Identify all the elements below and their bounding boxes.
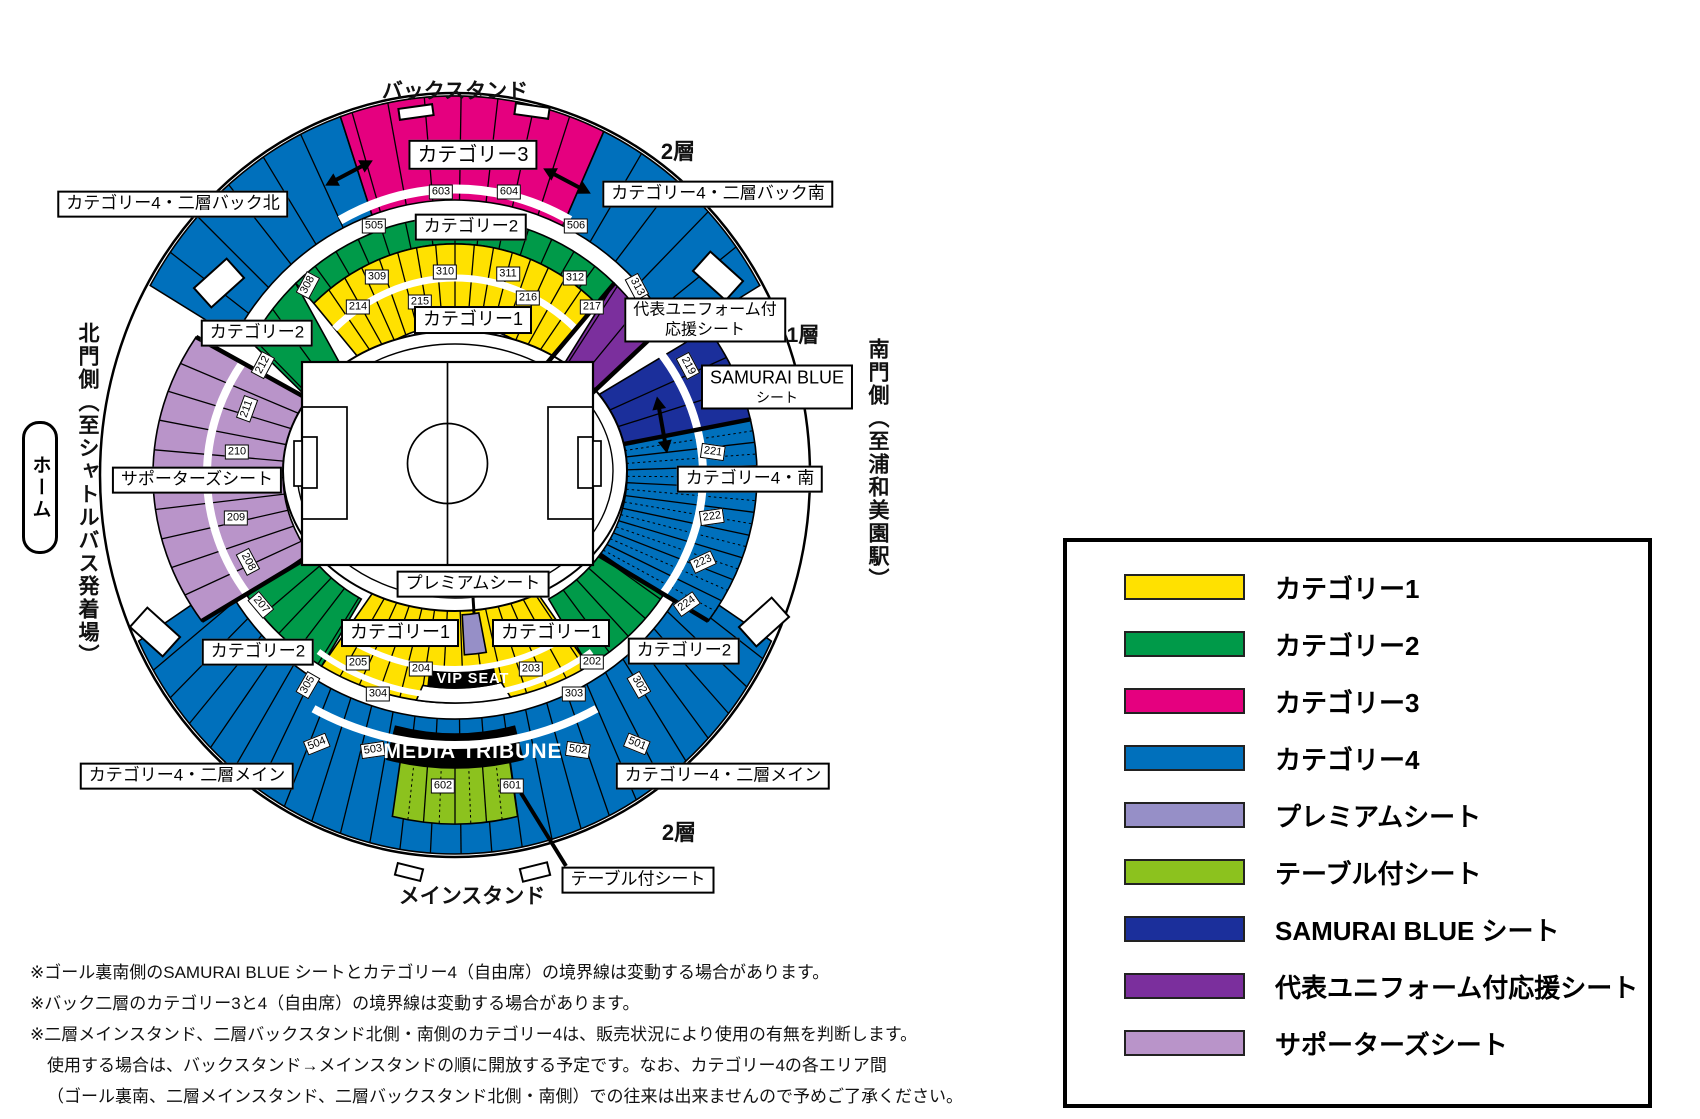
legend-label-supporters: サポーターズシート [1275, 1025, 1508, 1062]
label-cat4-back-north: カテゴリー4・二層バック北 [57, 191, 288, 218]
legend-label-premium: プレミアムシート [1275, 797, 1481, 834]
section-number-chip: 204 [409, 662, 433, 677]
label-table-seat: テーブル付シート [562, 867, 715, 894]
vip-seat-band: VIP SEAT [437, 671, 510, 687]
legend-label-samurai: SAMURAI BLUE シート [1275, 911, 1560, 948]
section-number-chip: 506 [564, 219, 588, 234]
section-number-chip: 203 [519, 662, 543, 677]
legend-item-category3: カテゴリー3 [1067, 688, 1648, 714]
legend-label-category2: カテゴリー2 [1275, 626, 1419, 663]
legend-swatch-category3 [1124, 688, 1245, 714]
goal-left [294, 441, 302, 486]
label-samurai-blue-seat: SAMURAI BLUE シート [701, 364, 853, 409]
legend-item-category2: カテゴリー2 [1067, 631, 1648, 657]
label-samurai-line2: シート [710, 389, 844, 406]
legend-item-supporters: サポーターズシート [1067, 1030, 1648, 1056]
section-number-chip: 205 [346, 656, 370, 671]
gate-structure [520, 862, 550, 881]
label-category3: カテゴリー3 [408, 140, 537, 170]
tier1-label: 1層 [787, 319, 820, 349]
main-stand-title: メインスタンド [399, 880, 546, 910]
label-cat4-main-left: カテゴリー4・二層メイン [80, 763, 294, 790]
legend-label-category1: カテゴリー1 [1275, 569, 1419, 606]
legend-swatch-samurai [1124, 916, 1245, 942]
section-number-chip: 216 [516, 291, 540, 306]
section-number-chip: 217 [580, 300, 604, 315]
label-uniform-seat-line2: 応援シート [633, 320, 777, 340]
label-category1-bottom-right: カテゴリー1 [492, 619, 610, 647]
home-badge-text: ホーム [27, 455, 54, 521]
tier2-top-label: 2層 [661, 134, 695, 166]
label-samurai-line1: SAMURAI BLUE [710, 367, 844, 389]
footnote-line: ※バック二層のカテゴリー3と4（自由席）の境界線は変動する場合があります。 [30, 988, 963, 1019]
legend-label-uniform: 代表ユニフォーム付応援シート [1275, 968, 1638, 1005]
section-number-chip: 311 [496, 267, 520, 282]
legend: カテゴリー1 カテゴリー2 カテゴリー3 カテゴリー4 プレミアムシート テーブ… [1063, 538, 1652, 1108]
label-supporters-seat: サポーターズシート [112, 467, 282, 494]
gate-structure [395, 863, 423, 881]
section-number-chip: 210 [225, 445, 249, 460]
footnote-line: （ゴール裏南、二層メインスタンド、二層バックスタンド北側・南側）での往来は出来ま… [30, 1081, 963, 1112]
section-number-chip: 604 [497, 185, 521, 200]
section-number-chip: 214 [346, 300, 370, 315]
legend-item-category4: カテゴリー4 [1067, 745, 1648, 771]
section-number-chip: 209 [224, 511, 248, 526]
label-category1-top: カテゴリー1 [414, 306, 532, 334]
legend-item-table: テーブル付シート [1067, 859, 1648, 885]
media-tribune-band: MEDIA TRIBUNE [383, 740, 562, 764]
section-number-chip: 303 [562, 687, 586, 702]
section-number-chip: 312 [563, 271, 587, 286]
section-number-chip: 601 [500, 779, 524, 794]
section-number-chip: 221 [700, 443, 726, 461]
goal-right [593, 441, 601, 486]
section-number-chip: 602 [431, 779, 455, 794]
legend-item-samurai: SAMURAI BLUE シート [1067, 916, 1648, 942]
section-number-chip: 304 [366, 687, 390, 702]
label-category2-bottom-left: カテゴリー2 [202, 639, 314, 666]
tier2-bottom-label: 2層 [662, 815, 696, 847]
legend-swatch-premium [1124, 802, 1245, 828]
legend-item-uniform: 代表ユニフォーム付応援シート [1067, 973, 1648, 999]
footnote-line: ※ゴール裏南側のSAMURAI BLUE シートとカテゴリー4（自由席）の境界線… [30, 957, 963, 988]
label-cat4-main-right: カテゴリー4・二層メイン [616, 763, 830, 790]
section-number-chip: 202 [580, 655, 604, 670]
section-number-chip: 309 [365, 270, 389, 285]
label-cat4-south: カテゴリー4・南 [677, 466, 823, 493]
legend-label-table: テーブル付シート [1275, 854, 1481, 891]
legend-label-category3: カテゴリー3 [1275, 683, 1419, 720]
label-category1-bottom-left: カテゴリー1 [341, 619, 459, 647]
legend-swatch-table [1124, 859, 1245, 885]
label-uniform-seat: 代表ユニフォーム付 応援シート [624, 297, 786, 342]
legend-item-category1: カテゴリー1 [1067, 574, 1648, 600]
north-gate-label: 北門側（至シャトルバス発着場） [72, 322, 102, 667]
label-uniform-seat-line1: 代表ユニフォーム付 [633, 300, 777, 320]
legend-swatch-supporters [1124, 1030, 1245, 1056]
section-number-chip: 502 [565, 741, 591, 759]
legend-swatch-category4 [1124, 745, 1245, 771]
home-badge: ホーム [22, 421, 58, 554]
legend-item-premium: プレミアムシート [1067, 802, 1648, 828]
label-cat4-back-south: カテゴリー4・二層バック南 [602, 181, 833, 208]
legend-swatch-category2 [1124, 631, 1245, 657]
label-category2-left: カテゴリー2 [201, 320, 313, 347]
legend-label-category4: カテゴリー4 [1275, 740, 1419, 777]
section-number-chip: 603 [429, 185, 453, 200]
footnote-line: ※二層メインスタンド、二層バックスタンド北側・南側のカテゴリー4は、販売状況によ… [30, 1019, 963, 1050]
seating-chart-page: バックスタンド メインスタンド 2層 2層 1層 北門側（至シャトルバス発着場）… [0, 0, 1700, 1119]
premium-pointer-line [473, 597, 474, 613]
section-number-chip: 505 [362, 219, 386, 234]
footnotes: ※ゴール裏南側のSAMURAI BLUE シートとカテゴリー4（自由席）の境界線… [30, 957, 963, 1112]
back-stand-title: バックスタンド [382, 75, 528, 105]
legend-swatch-uniform [1124, 973, 1245, 999]
label-category2-top: カテゴリー2 [415, 214, 527, 241]
label-category2-bottom-right: カテゴリー2 [628, 638, 740, 665]
section-number-chip: 310 [433, 265, 457, 280]
south-gate-label: 南門側（至浦和美園駅） [862, 338, 892, 591]
legend-swatch-category1 [1124, 574, 1245, 600]
footnote-line: 使用する場合は、バックスタンド→メインスタンドの順に開放する予定です。なお、カテ… [30, 1050, 963, 1081]
label-premium-seat: プレミアムシート [397, 571, 550, 598]
